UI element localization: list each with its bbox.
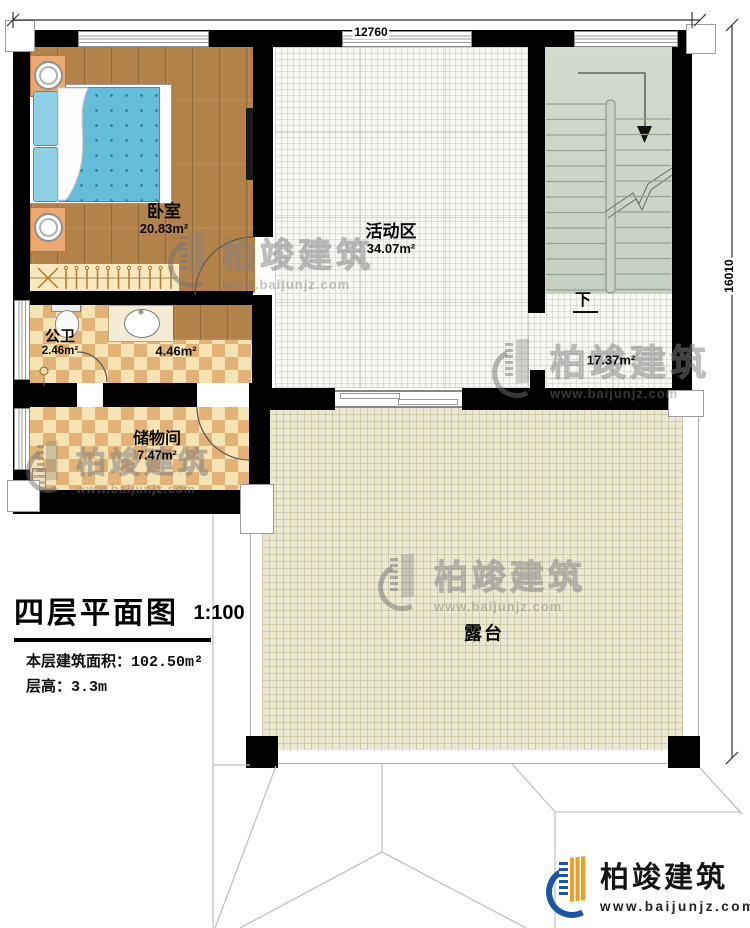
company-brand: 柏竣建筑 www.baijunjz.com [546, 854, 750, 914]
stat-floor-area: 本层建筑面积：102.50m² [26, 650, 245, 671]
lamp-icon [34, 213, 63, 242]
sliding-door-panel [340, 393, 400, 399]
terrace-column-right [668, 736, 700, 768]
label-hall-area: 4.46m² [155, 345, 196, 360]
bed-pillow-bottom [33, 147, 58, 202]
terrace-floor [262, 407, 683, 750]
page-title: 四层平面图 [14, 588, 179, 632]
counter-wood [173, 305, 252, 340]
stairs-floor [545, 47, 672, 293]
wall-bath-bottom-b [103, 383, 197, 407]
lamp-icon [34, 61, 63, 90]
title-block: 四层平面图 1:100 本层建筑面积：102.50m² 层高：3.3m [14, 588, 245, 696]
stat-floor-height: 层高：3.3m [26, 675, 245, 696]
window-bedroom-top [78, 31, 209, 47]
wall-storage-right [249, 383, 270, 497]
stair-hall-floor [528, 293, 672, 388]
window-bath-left [14, 300, 30, 380]
wall-storage-bottom [13, 490, 262, 514]
floor-plan-canvas: 卧室 20.83m² 活动区 34.07m² 公卫 2.46m² 4.46m² … [0, 0, 750, 928]
label-terrace: 露台 [464, 624, 504, 645]
pier-terrace-right [668, 390, 704, 417]
company-name: 柏竣建筑 [600, 854, 750, 896]
terrace-column-left [246, 736, 278, 768]
wall-bedroom-bottom [13, 291, 253, 305]
window-stairs-top [574, 31, 678, 47]
company-website: www.baijunjz.com [600, 899, 750, 914]
label-storage: 储物间 7.47m² [133, 431, 181, 464]
sliding-door [335, 390, 462, 408]
sink-icon [124, 309, 160, 338]
wall-activity-stairs [528, 30, 545, 313]
bracket-bottom-left [7, 480, 40, 512]
bed-quilt [58, 87, 160, 202]
label-stairs-down: 下 [575, 292, 591, 310]
company-logo-icon [546, 854, 594, 912]
wall-terrace-top-left [262, 388, 335, 410]
wall-right [672, 30, 692, 410]
window-storage-left [14, 408, 30, 470]
sliding-door-panel [398, 399, 458, 405]
bracket-top-left [5, 20, 35, 52]
bracket-top-right [686, 24, 716, 54]
title-underline [14, 638, 211, 642]
dimension-right: 16010 [722, 257, 736, 294]
activity-floor [275, 47, 528, 388]
wall-bedroom-right [253, 30, 273, 237]
label-stair-hall-area: 17.37m² [587, 354, 635, 369]
pier-terrace-left [240, 484, 274, 534]
plan-scale: 1:100 [193, 602, 244, 625]
wall-stub [530, 370, 545, 392]
dimension-top: 12760 [352, 25, 389, 39]
label-bedroom: 卧室 20.83m² [140, 202, 188, 236]
wall-bath-bottom-a [13, 383, 77, 407]
label-toilet: 公卫 2.46m² [42, 328, 78, 358]
wall-terrace-top-right [462, 388, 692, 410]
nightstand-bottom [30, 207, 66, 252]
bed-pillow-top [33, 91, 58, 146]
label-activity: 活动区 34.07m² [366, 222, 417, 256]
